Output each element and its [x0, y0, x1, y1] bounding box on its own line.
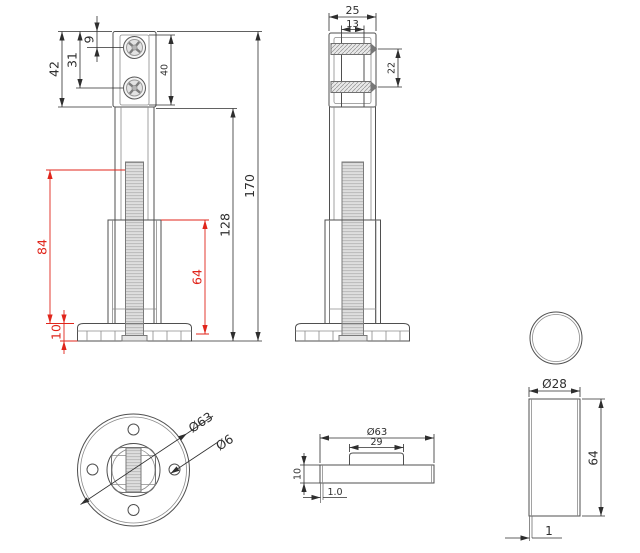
dim-hole-spacing: 22 [387, 62, 398, 74]
screw-top [124, 37, 146, 59]
dim-base-diameter: Ø63 [186, 409, 216, 436]
dim-hole-diameter: Ø6 [213, 431, 236, 453]
dim-total-height: 170 [242, 174, 257, 198]
dim-base-height-red: 10 [49, 324, 64, 340]
dim-sleeve-length: 64 [190, 269, 205, 285]
dim-boss-width: 29 [370, 437, 382, 448]
drawing-svg: 42 31 9 40 170 128 [0, 0, 640, 553]
front-view-red-dimensions: 84 10 64 [35, 170, 210, 354]
front-view-geometry [78, 32, 192, 342]
dim-hole2-offset: 31 [65, 52, 80, 68]
mount-hole-bottom [128, 505, 139, 516]
dim-base-wall-thickness: 1.0 [327, 487, 342, 498]
side-view: 25 13 22 [296, 4, 410, 341]
tube-detail-geometry [529, 312, 582, 516]
dim-hole1-offset: 9 [82, 35, 97, 43]
dim-tube-diameter: Ø28 [542, 377, 567, 391]
bottom-view: Ø63 Ø6 [78, 409, 237, 526]
dim-thread-length: 84 [35, 239, 50, 255]
dim-shaft-height: 128 [218, 213, 233, 237]
bottom-view-geometry [78, 414, 190, 526]
dim-tube-length: 64 [587, 450, 601, 465]
dim-tube-wall-thickness: 1 [545, 524, 553, 538]
mount-hole-top [128, 424, 139, 435]
mount-hole-left [87, 464, 98, 475]
dim-bracket-height: 42 [47, 61, 62, 77]
side-screw-top [331, 44, 371, 55]
technical-drawing-canvas: 42 31 9 40 170 128 [0, 0, 640, 553]
side-view-geometry [296, 33, 410, 341]
dim-bracket-depth: 25 [346, 4, 360, 17]
dim-channel-width: 13 [346, 19, 359, 30]
side-screw-bottom [331, 82, 371, 93]
base-side-view: Ø63 29 10 1.0 [293, 426, 435, 503]
tube-detail-view: Ø28 64 1 [505, 312, 605, 541]
screw-bottom [124, 77, 146, 99]
base-side-geometry [320, 453, 434, 483]
dim-plate-height: 40 [160, 64, 171, 76]
front-view: 42 31 9 40 170 128 [35, 16, 263, 354]
dim-base-profile-height: 10 [293, 468, 304, 480]
